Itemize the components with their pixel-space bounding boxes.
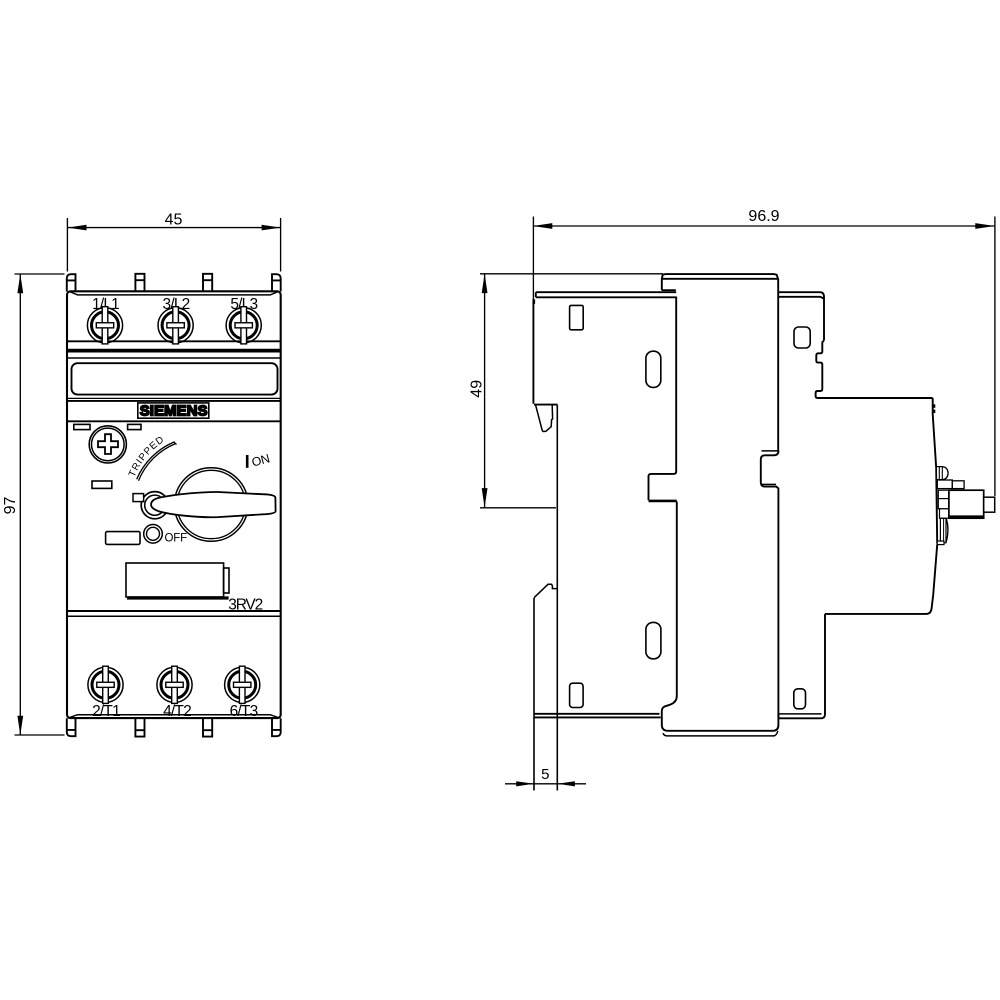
svg-text:2/T1: 2/T1 [92,703,120,720]
svg-text:96.9: 96.9 [748,208,779,225]
svg-text:97: 97 [2,497,19,515]
svg-text:49: 49 [469,380,486,398]
svg-text:SIEMENS: SIEMENS [140,404,208,420]
svg-text:5: 5 [541,766,549,783]
svg-text:45: 45 [165,211,183,228]
svg-text:6/T3: 6/T3 [230,703,258,720]
svg-text:4/T2: 4/T2 [163,703,191,720]
svg-text:OFF: OFF [165,532,188,544]
